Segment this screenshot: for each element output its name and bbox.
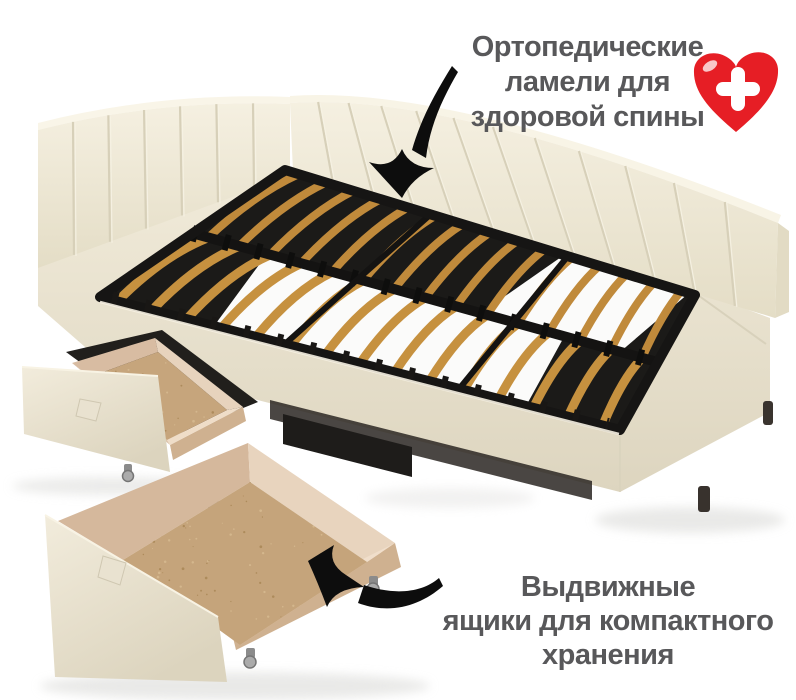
annotation-line: ящики для компактного bbox=[426, 604, 790, 638]
annotation-orthopedic: Ортопедические ламели для здоровой спины bbox=[415, 30, 760, 135]
annotation-line: Ортопедические bbox=[415, 30, 760, 65]
bed-leg bbox=[698, 486, 710, 512]
headboard-channel-seam bbox=[253, 103, 254, 189]
annotation-line: ламели для bbox=[415, 65, 760, 100]
annotation-line: Выдвижные bbox=[426, 570, 790, 604]
annotation-storage: Выдвижные ящики для компактного хранения bbox=[426, 570, 790, 672]
annotation-line: здоровой спины bbox=[415, 100, 760, 135]
bed-leg bbox=[763, 401, 773, 425]
caster-wheel bbox=[123, 464, 134, 482]
caster-wheel bbox=[244, 648, 256, 668]
headboard-channel-seam bbox=[73, 122, 74, 255]
annotation-line: хранения bbox=[426, 638, 790, 672]
product-image: Ортопедические ламели для здоровой спины… bbox=[0, 0, 796, 700]
